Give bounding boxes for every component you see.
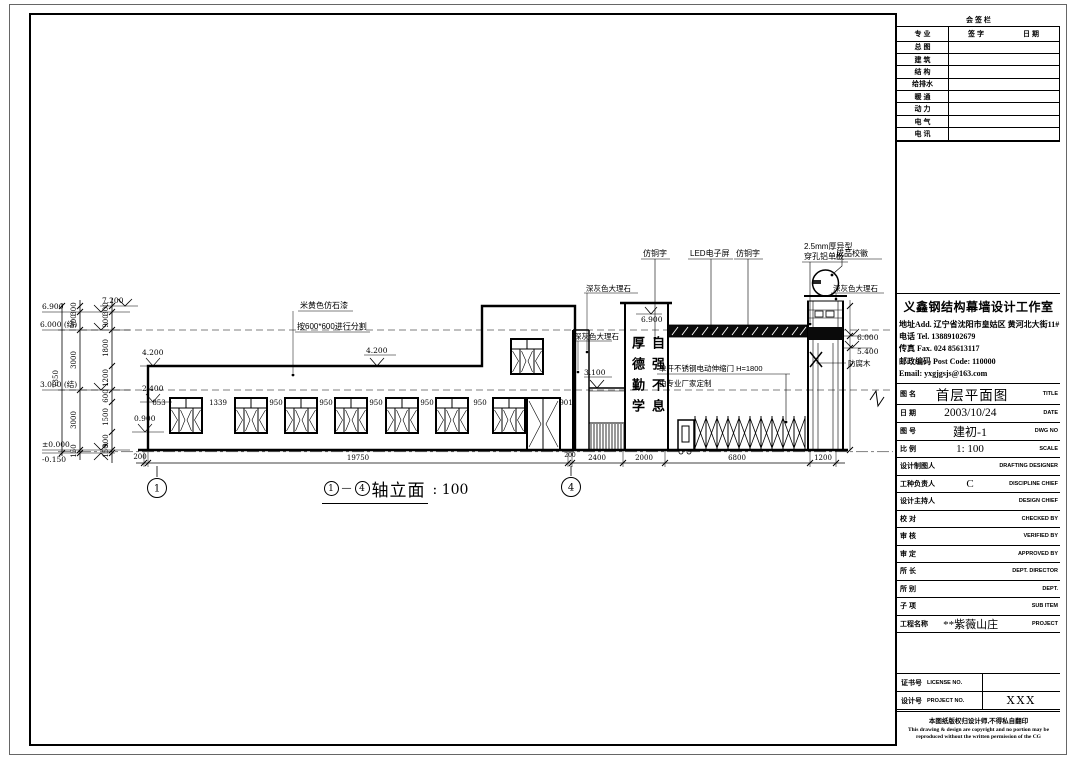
date-cell [1003, 91, 1060, 103]
license-table: 证书号LICENSE NO. 设计号PROJECT NO. XXX [897, 673, 1060, 710]
row-label-en: SCALE [994, 446, 1060, 452]
row-label-en: DWG NO [994, 428, 1060, 434]
caption-scale: : 100 [433, 482, 469, 498]
dim-label: 950 [269, 399, 282, 407]
license-value [983, 674, 1060, 691]
discipline-cell: 电 气 [897, 116, 949, 128]
company-email: Email: yxgjgsjs@163.com [899, 368, 1058, 380]
tower-motto-left: 厚德勤学 [629, 336, 647, 428]
left-dimension-stack: 6.900 6.000 (结) 3.000 (结) ±0.000 -0.150 … [40, 296, 172, 464]
row-label: 审 定 [897, 549, 946, 559]
signature-cell [949, 116, 1003, 128]
row-label: 日 期 [897, 408, 944, 418]
col-header: 专 业 [897, 27, 949, 42]
dim-label: 3000 [70, 411, 78, 429]
row-label-en: SUB ITEM [994, 603, 1060, 609]
annotation-label: 深灰色大理石 [586, 283, 631, 293]
license-cell: 证书号LICENSE NO. [897, 674, 983, 691]
annotation-label: 按600*600进行分割 [297, 321, 367, 331]
row-label-en: VERIFIED BY [994, 533, 1060, 539]
signature-table: 会 签 栏 专 业 签 字 日 期 总 图 建 筑 结 构 给排水 暖 通 动 … [897, 13, 1060, 142]
info-row-subitem: 子 项SUB ITEM [897, 597, 1060, 615]
annotation-label: 成品校徽 [836, 248, 868, 258]
copyright-note: 本图纸版权归设计师,不得私自翻印 This drawing & design a… [897, 711, 1060, 741]
dim-label: 300 [70, 302, 78, 315]
info-row-project: 工程名称**紫薇山庄PROJECT [897, 615, 1060, 633]
col-header: 日 期 [1003, 27, 1060, 42]
row-value: 首层平面图 [936, 384, 1009, 404]
info-row-dept: 所 别DEPT. [897, 580, 1060, 598]
discipline-cell: 电 讯 [897, 128, 949, 140]
dim-label: 1200 [102, 369, 110, 387]
caption-underlined: 1 — 4 轴立面 [322, 476, 428, 504]
company-address: 地址Add. 辽宁省沈阳市皇姑区 黄河北大街11# [899, 319, 1058, 331]
dim-label: 600 [102, 389, 110, 402]
row-label-en: DEPT. [994, 586, 1060, 592]
elevation-label: 3.100 [584, 368, 606, 377]
row-value: C [946, 478, 994, 490]
dim-label: 200 [133, 453, 146, 461]
dim-label: 19750 [347, 454, 369, 462]
row-value: **紫薇山庄 [943, 616, 998, 632]
caption-name: 轴立面 [372, 476, 426, 501]
elevation-label: 2.400 [142, 384, 164, 393]
dim-label: 300 [102, 302, 110, 315]
annotation-label: 深灰色大理石 [833, 283, 878, 293]
signature-table-title: 会 签 栏 [897, 13, 1060, 27]
row-label-en: DRAFTING DESIGNER [994, 463, 1060, 469]
caption-separator: — [342, 483, 352, 494]
info-row-approved: 审 定APPROVED BY [897, 545, 1060, 563]
row-label: 所 别 [897, 584, 946, 594]
signature-cell [949, 42, 1003, 54]
dim-label: 853 [152, 399, 165, 407]
row-label: 证书号 [901, 678, 922, 688]
license-row: 证书号LICENSE NO. [897, 674, 1060, 691]
dim-label: 950 [473, 399, 486, 407]
row-label: 图 号 [897, 426, 946, 436]
led-beam-band [668, 325, 808, 337]
dim-label: 900 [102, 314, 110, 327]
dim-label: 950 [420, 399, 433, 407]
date-cell [1003, 79, 1060, 91]
dim-label: 950 [369, 399, 382, 407]
annotation-label: 防腐木 [848, 358, 871, 368]
annotation-label: 米黄色仿石漆 [300, 300, 348, 310]
row-value: 2003/10/24 [944, 407, 996, 419]
row-label-en: PROJECT [998, 621, 1060, 627]
tower-motto-right: 自强不息 [649, 336, 667, 428]
project-no-cell: 设计号PROJECT NO. [897, 692, 983, 709]
info-row-drafter: 设计制图人DRAFTING DESIGNER [897, 457, 1060, 475]
dim-label: 1339 [209, 399, 227, 407]
copyright-en: This drawing & design are copyright and … [897, 727, 1060, 741]
date-cell [1003, 66, 1060, 78]
dim-label: 150 [102, 444, 110, 457]
project-no-row: 设计号PROJECT NO. XXX [897, 691, 1060, 709]
row-label-en: DESIGN CHIEF [994, 498, 1060, 504]
row-label-en: DEPT. DIRECTOR [994, 568, 1060, 574]
date-cell [1003, 42, 1060, 54]
dim-label: 2400 [588, 454, 606, 462]
row-label: 设计制图人 [897, 461, 946, 471]
row-label-en: APPROVED BY [994, 551, 1060, 557]
discipline-cell: 暖 通 [897, 91, 949, 103]
entrance-door [527, 398, 560, 450]
dim-label: 900 [70, 314, 78, 327]
dim-label: 6800 [728, 454, 746, 462]
signature-cell [949, 128, 1003, 140]
annotation-label: 单开不锈钢电动伸缩门 H=1800 [659, 363, 763, 373]
annotation-label: LED电子屏 [690, 248, 730, 258]
row-label-en: DISCIPLINE CHIEF [994, 481, 1060, 487]
dim-label: 7350 [52, 370, 60, 388]
axis-number: 1 [154, 484, 160, 495]
info-row-dwgno: 图 号建初-1DWG NO [897, 422, 1060, 440]
dim-label: 2000 [635, 454, 653, 462]
annotation-label: 仿铜字 [736, 248, 760, 258]
axis-number: 4 [568, 483, 574, 494]
info-row-dept-director: 所 长DEPT. DIRECTOR [897, 562, 1060, 580]
dim-label: 3000 [70, 351, 78, 369]
caption-axis-end: 4 [355, 481, 370, 496]
date-cell [1003, 54, 1060, 66]
signature-cell [949, 91, 1003, 103]
date-cell [1003, 103, 1060, 115]
discipline-cell: 建 筑 [897, 54, 949, 66]
signature-cell [949, 103, 1003, 115]
row-label: 所 长 [897, 566, 946, 576]
info-row-discipline-chief: 工种负责人CDISCIPLINE CHIEF [897, 475, 1060, 493]
info-row-date: 日 期2003/10/24DATE [897, 404, 1060, 422]
company-info: 义鑫钢结构幕墙设计工作室 地址Add. 辽宁省沈阳市皇姑区 黄河北大街11# 电… [897, 293, 1060, 380]
company-fax: 传真 Fax. 024 85613117 [899, 343, 1058, 355]
elevation-label: ±0.000 [42, 440, 70, 449]
info-row-design-chief: 设计主持人DESIGN CHIEF [897, 492, 1060, 510]
company-tel: 电话 Tel. 13889102679 [899, 331, 1058, 343]
row-label-en: PROJECT NO. [927, 698, 964, 704]
row-label-en: TITLE [1008, 391, 1060, 397]
discipline-cell: 给排水 [897, 79, 949, 91]
elevation-label: 6.900 [641, 315, 663, 324]
col-header: 签 字 [949, 27, 1003, 42]
dim-label: 1500 [102, 408, 110, 426]
drawing-sheet: 6.900 6.000 (结) 3.000 (结) ±0.000 -0.150 … [0, 0, 1074, 760]
row-label: 比 例 [897, 444, 946, 454]
drawing-info-table: 图 名首层平面图TITLE 日 期2003/10/24DATE 图 号建初-1D… [897, 383, 1060, 633]
elevation-label: 4.200 [366, 346, 388, 355]
row-label: 子 项 [897, 601, 946, 611]
signature-cell [949, 54, 1003, 66]
info-row-title: 图 名首层平面图TITLE [897, 384, 1060, 404]
info-row-verified: 审 核VERIFIED BY [897, 527, 1060, 545]
window-row: 853 1339 950 950 950 950 950 901 [152, 339, 572, 450]
annotation-label: 深灰色大理石 [574, 331, 619, 341]
title-block: 会 签 栏 专 业 签 字 日 期 总 图 建 筑 结 构 给排水 暖 通 动 … [895, 13, 1060, 746]
signature-cell [949, 79, 1003, 91]
bar-gate [591, 424, 624, 450]
company-name: 义鑫钢结构幕墙设计工作室 [899, 298, 1058, 315]
dim-label: 1200 [814, 454, 832, 462]
copyright-cn: 本图纸版权归设计师,不得私自翻印 [897, 715, 1060, 725]
dim-label: 1800 [102, 339, 110, 357]
dim-label: 950 [319, 399, 332, 407]
info-row-scale: 比 例1: 100SCALE [897, 440, 1060, 458]
company-postcode: 邮政编码 Post Code: 110000 [899, 356, 1058, 368]
elevation-label: 4.200 [142, 348, 164, 357]
signature-cell [949, 66, 1003, 78]
drawing-caption: 1 — 4 轴立面 : 100 [295, 476, 495, 504]
row-label: 工种负责人 [897, 479, 946, 489]
date-cell [1003, 116, 1060, 128]
row-value: 建初-1 [946, 423, 994, 440]
project-no-value: XXX [983, 692, 1060, 709]
row-label: 设计主持人 [897, 496, 946, 506]
dim-label: 200 [564, 452, 576, 459]
row-value: 1: 100 [946, 443, 994, 455]
elevation-label: -0.150 [42, 455, 66, 464]
row-label: 工程名称 [897, 619, 943, 629]
elevation-label: 5.400 [857, 347, 879, 356]
row-label-en: DATE [997, 410, 1060, 416]
dim-label: 901 [559, 399, 572, 407]
elevation-label: 0.900 [134, 414, 156, 423]
row-label: 图 名 [897, 389, 936, 399]
row-label-en: CHECKED BY [994, 516, 1060, 522]
row-label-en: LICENSE NO. [927, 680, 962, 686]
row-label: 设计号 [901, 696, 922, 706]
annotation-label: 仿铜字 [643, 248, 667, 258]
row-label: 校 对 [897, 514, 946, 524]
discipline-cell: 动 力 [897, 103, 949, 115]
elevation-label: 6.000 [857, 333, 879, 342]
dim-label: 150 [70, 444, 78, 457]
discipline-cell: 结 构 [897, 66, 949, 78]
row-label: 审 核 [897, 531, 946, 541]
info-row-checked: 校 对CHECKED BY [897, 510, 1060, 528]
elevation-label: 6.900 [42, 302, 64, 311]
gate-pillar: 6.000 5.400 防腐木 [804, 270, 884, 453]
discipline-cell: 总 图 [897, 42, 949, 54]
date-cell [1003, 128, 1060, 140]
caption-axis-start: 1 [324, 481, 339, 496]
